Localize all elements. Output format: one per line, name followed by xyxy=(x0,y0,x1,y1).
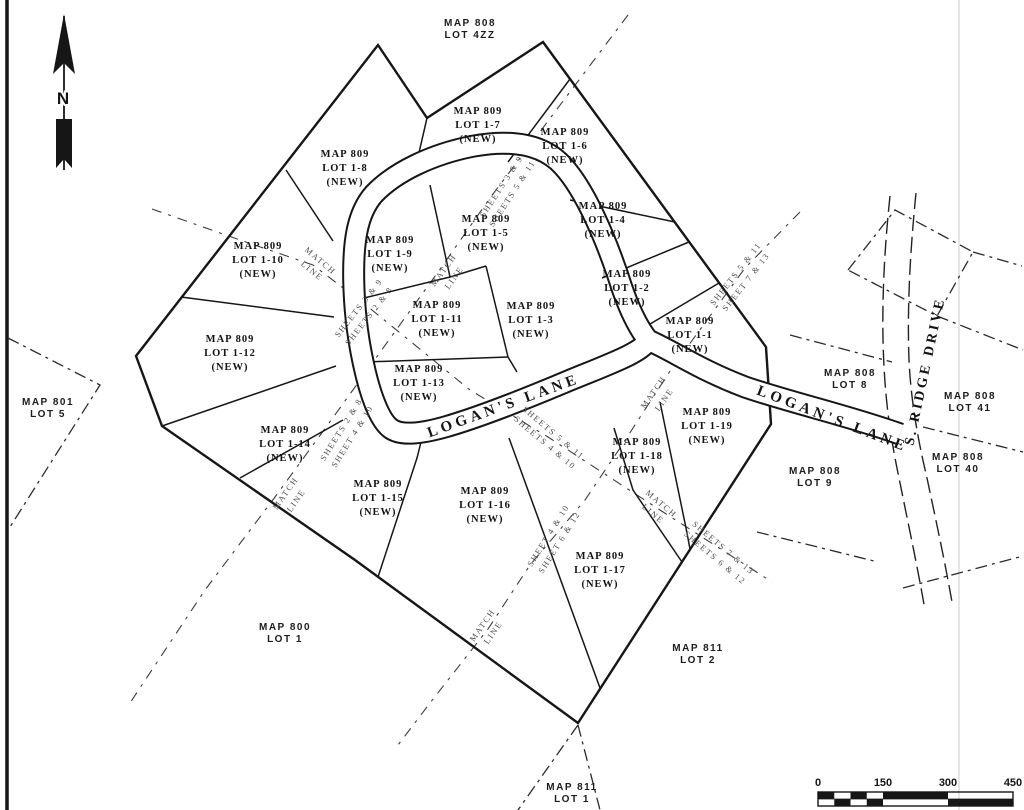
match-line-label: MATCHLINE xyxy=(270,475,311,519)
svg-text:LOT 1: LOT 1 xyxy=(267,634,303,645)
map808-lot-line xyxy=(790,335,892,362)
map808-lot-line xyxy=(757,532,878,562)
map808-lot-line xyxy=(923,427,1023,452)
svg-text:(NEW): (NEW) xyxy=(418,328,455,339)
svg-text:(NEW): (NEW) xyxy=(581,579,618,590)
svg-text:LOT 1-12: LOT 1-12 xyxy=(204,348,256,359)
svg-text:LOT 1-10: LOT 1-10 xyxy=(232,255,284,266)
svg-text:LOT 1-9: LOT 1-9 xyxy=(367,249,413,260)
svg-text:MAP 809: MAP 809 xyxy=(366,235,415,246)
adjacent-lot-label: MAP 808LOT 41 xyxy=(944,391,996,414)
lot-label: MAP 809LOT 1-2(NEW) xyxy=(603,269,652,308)
svg-text:LOT 1-2: LOT 1-2 xyxy=(604,283,650,294)
adjacent-lot-label: MAP 808LOT 8 xyxy=(824,368,876,391)
svg-text:LOT 1-8: LOT 1-8 xyxy=(322,163,368,174)
scale-segment xyxy=(867,799,883,806)
svg-text:MAP 811: MAP 811 xyxy=(672,643,723,654)
svg-text:LOT 5: LOT 5 xyxy=(30,409,66,420)
svg-text:(NEW): (NEW) xyxy=(466,514,503,525)
lot-line xyxy=(162,366,336,426)
plat-map-page: N LOGAN'S LANE LOGAN'S LANE S. RIDGE DRI… xyxy=(0,0,1024,810)
lot-label: MAP 809LOT 1-11(NEW) xyxy=(411,300,462,339)
svg-text:MAP 811: MAP 811 xyxy=(546,782,597,793)
plat-map-svg: N LOGAN'S LANE LOGAN'S LANE S. RIDGE DRI… xyxy=(0,0,1024,810)
scale-segment xyxy=(818,792,834,799)
svg-text:LOT 1-17: LOT 1-17 xyxy=(574,565,626,576)
svg-text:(NEW): (NEW) xyxy=(266,453,303,464)
svg-text:LOT 1-16: LOT 1-16 xyxy=(459,500,511,511)
svg-text:MAP 808: MAP 808 xyxy=(444,18,496,29)
svg-text:LOT 9: LOT 9 xyxy=(797,478,833,489)
svg-text:LOT 1-19: LOT 1-19 xyxy=(681,421,733,432)
map801-boundary xyxy=(8,338,100,527)
svg-text:(NEW): (NEW) xyxy=(326,177,363,188)
svg-text:(NEW): (NEW) xyxy=(211,362,248,373)
lot-label: MAP 809LOT 1-9(NEW) xyxy=(366,235,415,274)
lot-label: MAP 809LOT 1-4(NEW) xyxy=(579,201,628,240)
map808-lot-line xyxy=(937,316,1023,350)
match-line-label: SHEETS 5 & 11SHEET 7 & 13 xyxy=(708,240,774,315)
svg-text:MAP 809: MAP 809 xyxy=(454,106,503,117)
svg-text:(NEW): (NEW) xyxy=(546,155,583,166)
svg-text:LOT 1-3: LOT 1-3 xyxy=(508,315,554,326)
north-arrow: N xyxy=(53,14,75,170)
lot-line xyxy=(366,357,508,362)
svg-text:MAP 808: MAP 808 xyxy=(789,466,841,477)
svg-text:MAP 809: MAP 809 xyxy=(576,551,625,562)
svg-text:MAP 809: MAP 809 xyxy=(603,269,652,280)
svg-text:LOT 41: LOT 41 xyxy=(949,403,992,414)
lot-label: MAP 809LOT 1-10(NEW) xyxy=(232,241,284,280)
lot-label: MAP 809LOT 1-13(NEW) xyxy=(393,364,445,403)
svg-text:LOT 1-14: LOT 1-14 xyxy=(259,439,311,450)
lot-label: MAP 809LOT 1-1(NEW) xyxy=(666,316,715,355)
svg-text:(NEW): (NEW) xyxy=(671,344,708,355)
svg-text:LOT 2: LOT 2 xyxy=(680,655,716,666)
lot-label: MAP 809LOT 1-14(NEW) xyxy=(259,425,311,464)
adjacent-parcel-lines xyxy=(8,210,1023,810)
svg-text:MAP 809: MAP 809 xyxy=(579,201,628,212)
svg-text:MAP 808: MAP 808 xyxy=(944,391,996,402)
adjacent-lot-label: MAP 808LOT 9 xyxy=(789,466,841,489)
svg-text:MAP 809: MAP 809 xyxy=(613,437,662,448)
svg-text:MAP 808: MAP 808 xyxy=(824,368,876,379)
svg-text:LOT 1-4: LOT 1-4 xyxy=(580,215,626,226)
svg-text:(NEW): (NEW) xyxy=(371,263,408,274)
svg-text:MAP 809: MAP 809 xyxy=(206,334,255,345)
svg-text:MAP 809: MAP 809 xyxy=(261,425,310,436)
scale-segment xyxy=(883,792,948,799)
scale-segment xyxy=(851,792,867,799)
svg-text:LOT 1-11: LOT 1-11 xyxy=(411,314,462,325)
svg-text:LOT 1: LOT 1 xyxy=(554,794,590,805)
svg-text:LOT 1-6: LOT 1-6 xyxy=(542,141,588,152)
adjacent-lot-label: MAP 808LOT 4ZZ xyxy=(444,18,496,41)
lot-label: MAP 809LOT 1-6(NEW) xyxy=(541,127,590,166)
lot-label: MAP 809LOT 1-3(NEW) xyxy=(507,301,556,340)
scale-tick-label: 150 xyxy=(874,777,892,789)
svg-text:LOT 1-18: LOT 1-18 xyxy=(611,451,663,462)
svg-text:MAP 801: MAP 801 xyxy=(22,397,74,408)
svg-text:LOT 1-5: LOT 1-5 xyxy=(463,228,509,239)
map808-lot-line xyxy=(973,252,1022,266)
svg-text:LOT 1-7: LOT 1-7 xyxy=(455,120,501,131)
lot-label: MAP 809LOT 1-18(NEW) xyxy=(611,437,663,476)
svg-text:(NEW): (NEW) xyxy=(359,507,396,518)
svg-text:(NEW): (NEW) xyxy=(618,465,655,476)
match-line-label: MATCHLINE xyxy=(635,488,679,530)
adjacent-lot-label: MAP 801LOT 5 xyxy=(22,397,74,420)
adjacent-lot-label: MAP 800LOT 1 xyxy=(259,622,311,645)
lot-label: MAP 809LOT 1-12(NEW) xyxy=(204,334,256,373)
scale-tick-label: 450 xyxy=(1004,777,1022,789)
lot-label: MAP 809LOT 1-16(NEW) xyxy=(459,486,511,525)
scale-bar: 0 150 300 450 xyxy=(815,777,1022,806)
svg-text:(NEW): (NEW) xyxy=(512,329,549,340)
svg-text:MAP 809: MAP 809 xyxy=(507,301,556,312)
svg-text:MAP 809: MAP 809 xyxy=(461,486,510,497)
svg-text:LOT 4ZZ: LOT 4ZZ xyxy=(444,30,495,41)
lot-label: MAP 809LOT 1-19(NEW) xyxy=(681,407,733,446)
svg-text:MAP 809: MAP 809 xyxy=(234,241,283,252)
svg-text:(NEW): (NEW) xyxy=(584,229,621,240)
svg-text:(NEW): (NEW) xyxy=(459,134,496,145)
svg-text:(NEW): (NEW) xyxy=(400,392,437,403)
svg-text:(NEW): (NEW) xyxy=(688,435,725,446)
svg-text:MAP 809: MAP 809 xyxy=(395,364,444,375)
svg-text:MAP 809: MAP 809 xyxy=(541,127,590,138)
svg-text:MAP 809: MAP 809 xyxy=(666,316,715,327)
adjacent-lot-label: MAP 808LOT 40 xyxy=(932,452,984,475)
svg-text:MAP 809: MAP 809 xyxy=(683,407,732,418)
svg-text:MAP 800: MAP 800 xyxy=(259,622,311,633)
svg-text:LOT 1-15: LOT 1-15 xyxy=(352,493,404,504)
adjacent-lot-label: MAP 811LOT 1 xyxy=(546,782,597,805)
match-line-label: MATCHLINE xyxy=(294,245,338,287)
north-label: N xyxy=(57,89,69,108)
svg-text:(NEW): (NEW) xyxy=(608,297,645,308)
svg-text:MAP 809: MAP 809 xyxy=(354,479,403,490)
svg-text:LOT 8: LOT 8 xyxy=(832,380,868,391)
svg-text:MAP 809: MAP 809 xyxy=(321,149,370,160)
adjacent-lot-label: MAP 811LOT 2 xyxy=(672,643,723,666)
lot-line xyxy=(509,438,600,688)
svg-text:MAP 809: MAP 809 xyxy=(413,300,462,311)
match-line-label: MATCHLINE xyxy=(638,374,679,418)
svg-text:(NEW): (NEW) xyxy=(467,242,504,253)
match-line-label: SHEETS 2 & 8SHEET 4 & 10 xyxy=(318,396,376,469)
svg-text:MAP 808: MAP 808 xyxy=(932,452,984,463)
svg-text:(NEW): (NEW) xyxy=(239,269,276,280)
svg-text:LOT 1-1: LOT 1-1 xyxy=(667,330,713,341)
map808-lot-line xyxy=(903,556,1023,588)
lot-line xyxy=(181,297,334,317)
lot-label: MAP 809LOT 1-17(NEW) xyxy=(574,551,626,590)
lot-label: MAP 809LOT 1-5(NEW) xyxy=(462,214,511,253)
scale-tick-label: 0 xyxy=(815,777,821,789)
svg-text:LOT 40: LOT 40 xyxy=(937,464,980,475)
lot-label: MAP 809LOT 1-15(NEW) xyxy=(352,479,404,518)
scale-segment xyxy=(834,799,850,806)
scale-tick-label: 300 xyxy=(939,777,957,789)
match-line-label: SHEETS 7 & 13SHEETS 6 & 12 xyxy=(682,519,756,587)
svg-text:LOT 1-13: LOT 1-13 xyxy=(393,378,445,389)
scale-segment xyxy=(948,799,1013,806)
lot-label: MAP 809LOT 1-7(NEW) xyxy=(454,106,503,145)
match-line xyxy=(128,15,628,706)
lot-label: MAP 809LOT 1-8(NEW) xyxy=(321,149,370,188)
